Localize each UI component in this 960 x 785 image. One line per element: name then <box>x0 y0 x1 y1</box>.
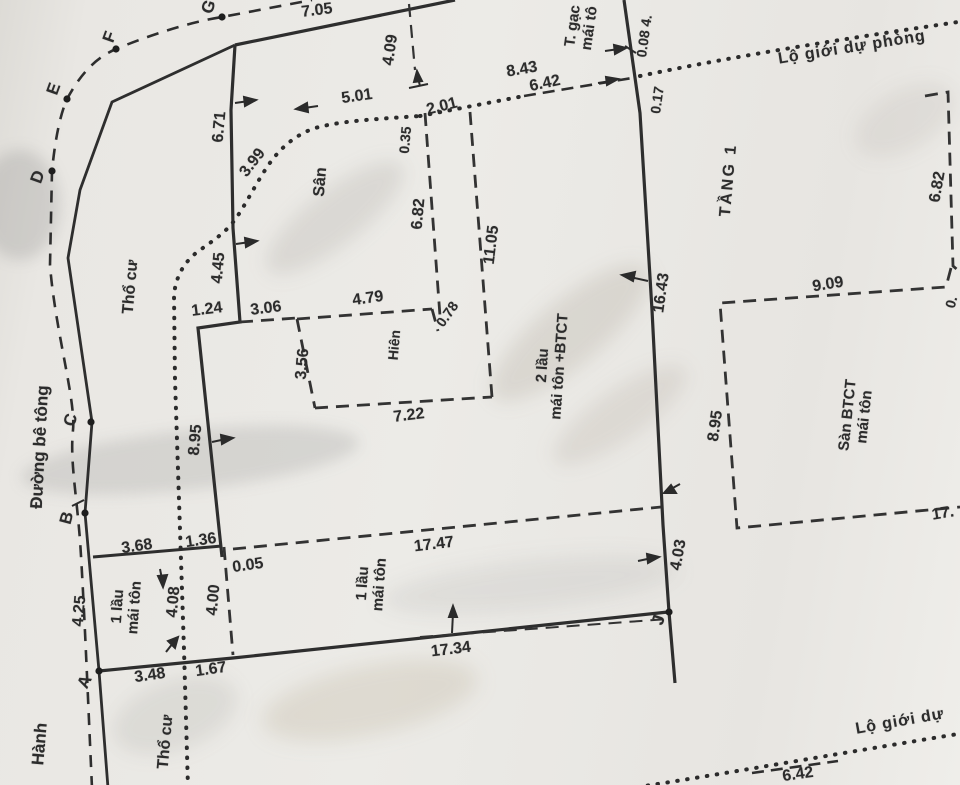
dim-1-24: 1.24 <box>190 299 223 321</box>
dim-7-05: 7.05 <box>300 0 333 22</box>
dim-17-cut: 17. <box>931 503 956 524</box>
dim-6-71: 6.71 <box>210 111 231 144</box>
plot-top-line <box>235 0 455 45</box>
dim-4-25: 4.25 <box>70 595 91 628</box>
dim-line-4-09 <box>409 4 415 70</box>
san-label: Sân <box>311 167 331 198</box>
dim-0-35: 0.35 <box>396 126 414 155</box>
dim-8-95-a: 8.95 <box>186 424 207 457</box>
hien-label: Hiên <box>385 329 404 361</box>
road-outer-dashed-line <box>50 0 312 785</box>
porch-dashed-3-06 <box>240 318 297 322</box>
dim-3-56: 3.56 <box>293 348 314 381</box>
plot-bottom-line <box>99 612 668 671</box>
dim-3-06: 3.06 <box>249 298 282 320</box>
dim-6-82-a: 6.82 <box>409 198 430 231</box>
dim-7-22: 7.22 <box>392 405 425 427</box>
porch-bottom-dashed-7-22 <box>315 397 492 408</box>
building-left-small-label: 1 lầu mái tôn <box>107 579 145 635</box>
survey-photo: A B C D E F G J Đường bê tông Hành Thổ c… <box>0 0 960 785</box>
hanh-label: Hành <box>28 722 52 766</box>
dim-6-42-b: 6.42 <box>781 764 814 785</box>
dim-4-00: 4.00 <box>204 584 225 617</box>
building-bottom-main-label: 1 lầu mái tôn <box>352 556 390 612</box>
porch-top-dashed-4-79 <box>297 309 432 319</box>
dim-4-08: 4.08 <box>164 586 185 619</box>
building-top-right-label: T. gạc mái tô <box>561 3 601 51</box>
dim-4-45: 4.45 <box>209 252 230 285</box>
